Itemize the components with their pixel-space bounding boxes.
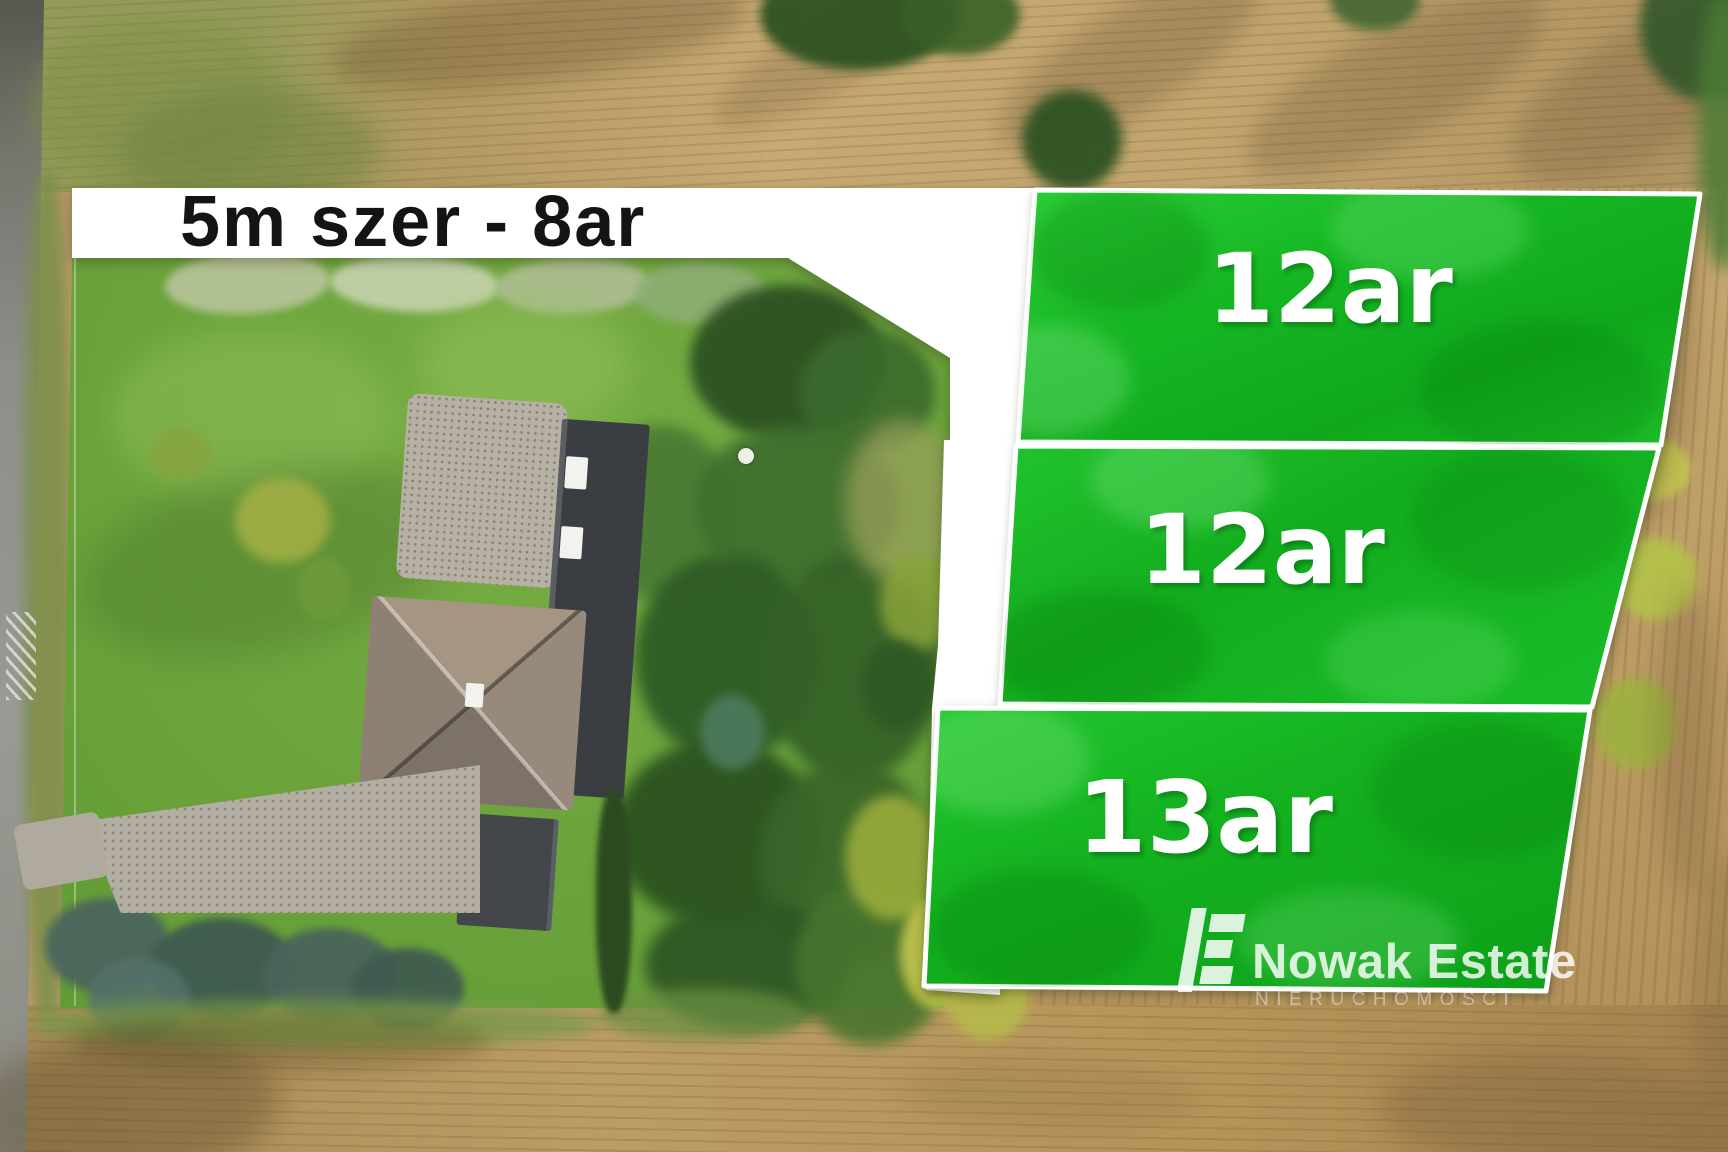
parcel-2-label: 12ar — [1139, 494, 1385, 606]
parcel-3-label: 13ar — [1077, 759, 1334, 876]
logo-subtitle: NIERUCHOMOŚCI — [1255, 990, 1516, 1009]
banner-label: 5m szer - 8ar — [180, 182, 646, 262]
parcel-1-label: 12ar — [1207, 233, 1453, 345]
logo-mark-icon — [1178, 906, 1248, 998]
white-parcel-band — [72, 188, 1038, 995]
logo-name: Nowak Estate — [1252, 938, 1577, 987]
nowak-estate-logo: Nowak Estate NIERUCHOMOŚCI — [1178, 902, 1598, 1012]
aerial-photo-listing: 12ar 12ar 13ar 5m szer - 8ar Nowak Estat… — [0, 0, 1728, 1152]
